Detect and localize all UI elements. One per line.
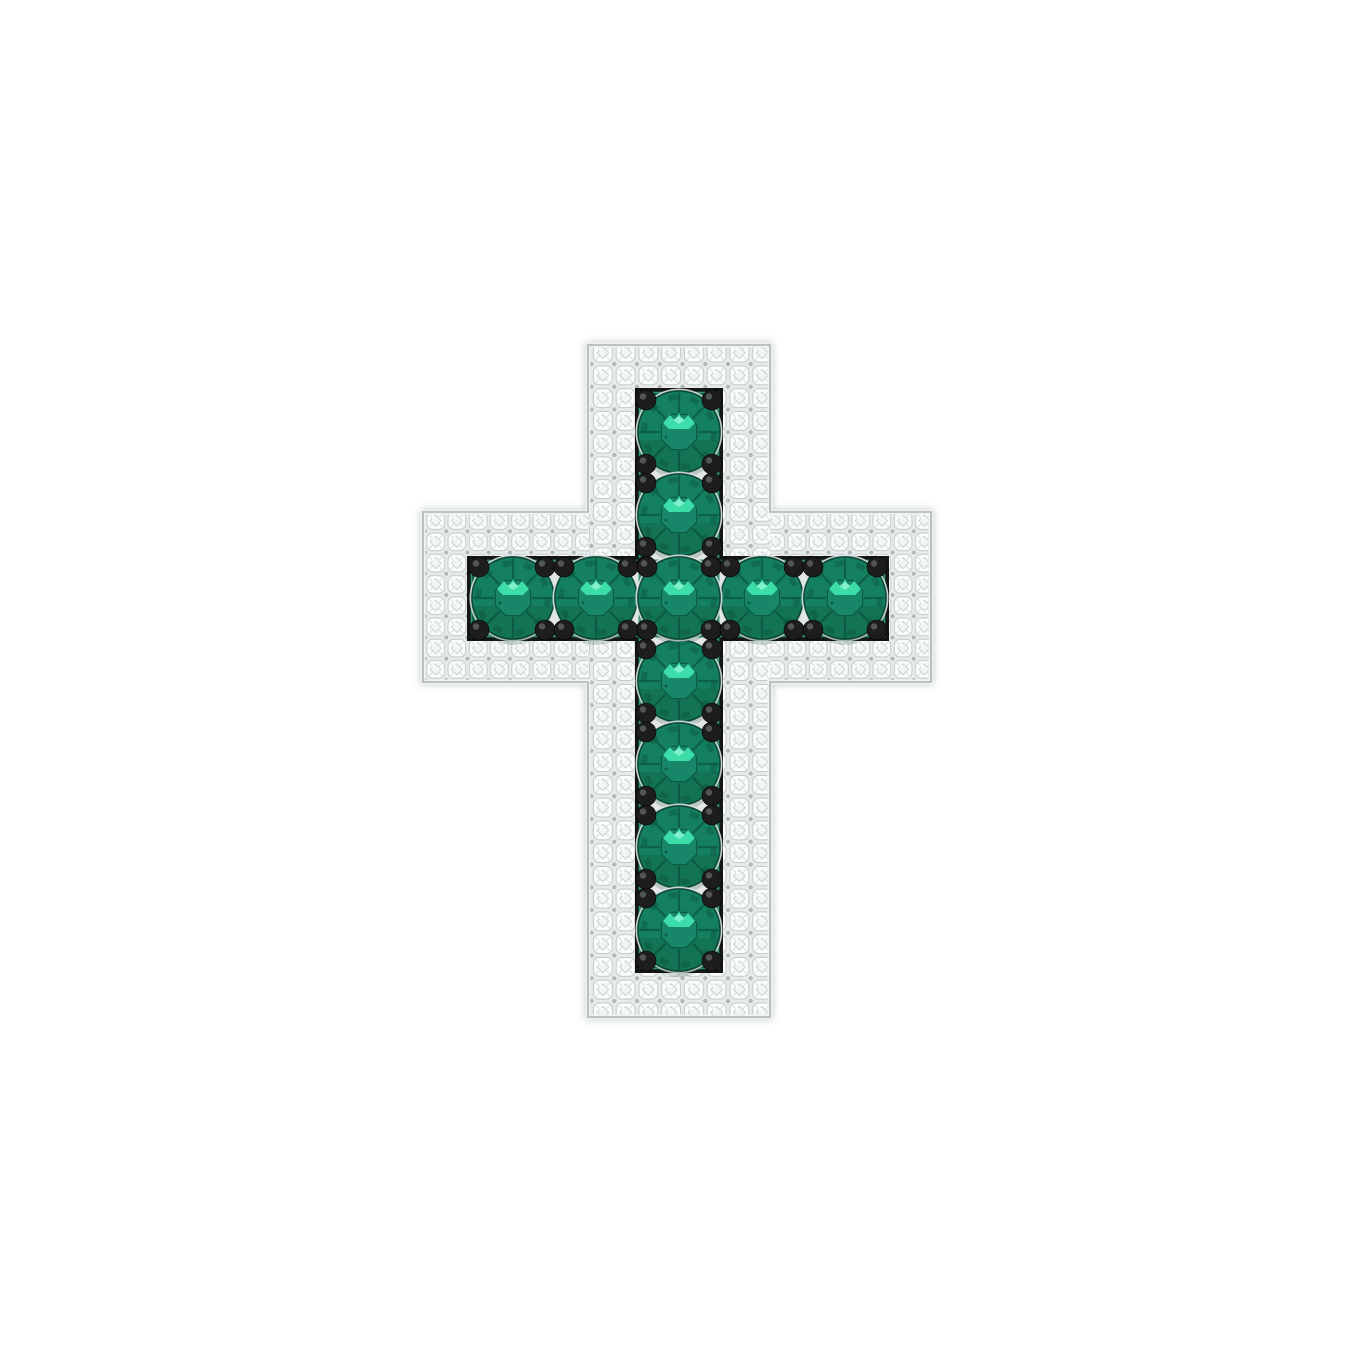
pendant-svg <box>0 0 1360 1360</box>
product-photo <box>0 0 1360 1360</box>
cross-pendant-render <box>0 0 1360 1360</box>
